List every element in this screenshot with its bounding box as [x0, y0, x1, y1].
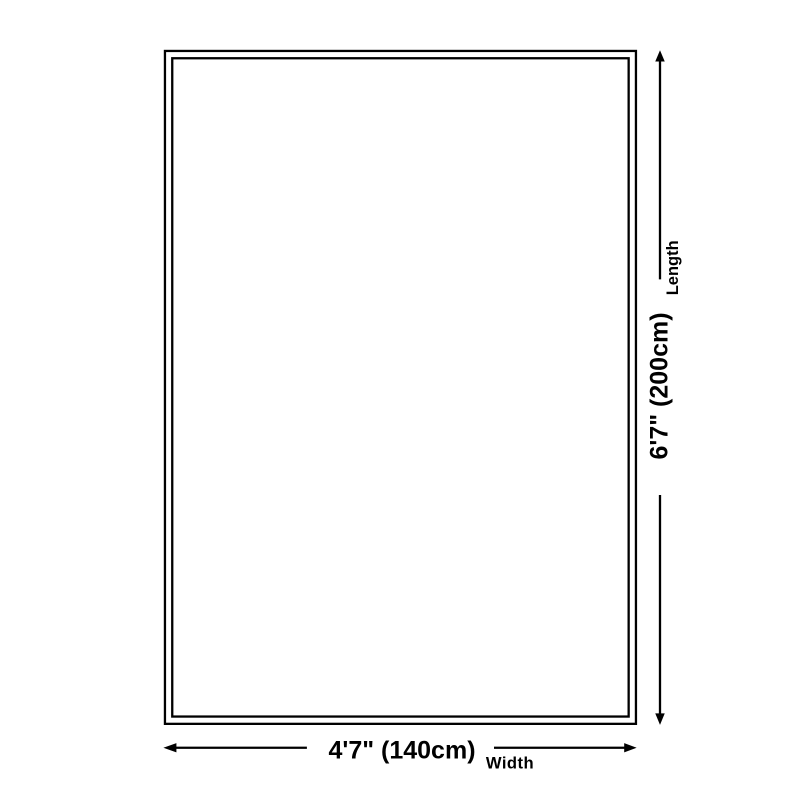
svg-text:4'7" (140cm): 4'7" (140cm) — [328, 737, 475, 765]
svg-text:Width: Width — [486, 754, 534, 773]
svg-text:Length: Length — [664, 240, 682, 295]
svg-text:6'7" (200cm): 6'7" (200cm) — [646, 312, 674, 459]
